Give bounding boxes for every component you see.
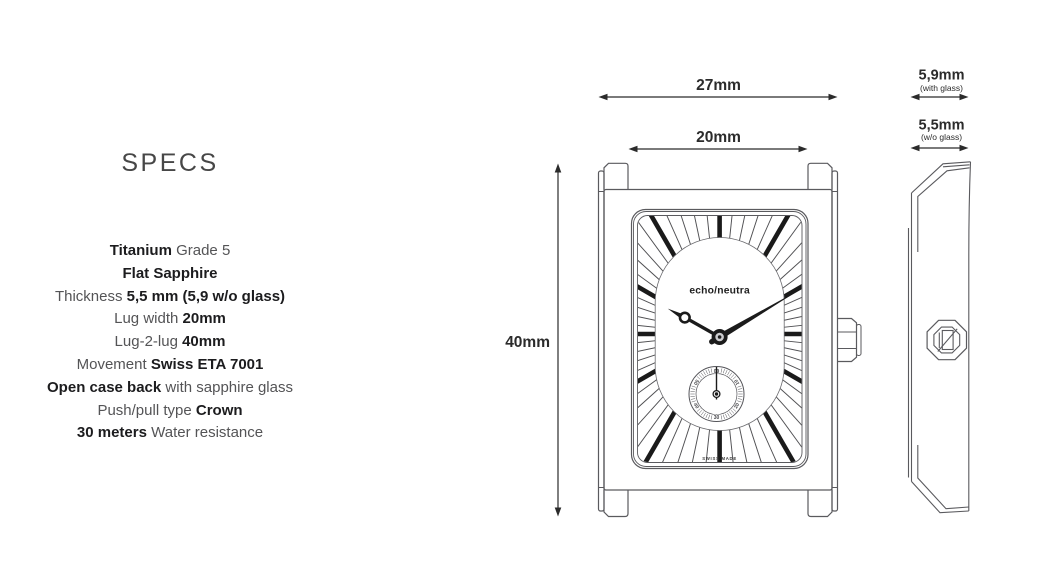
side-top-edge bbox=[912, 162, 971, 193]
lug-bottom-right bbox=[808, 490, 832, 517]
case-flank-left bbox=[599, 171, 605, 511]
dim-lug-to-lug-label: 40mm bbox=[505, 334, 550, 351]
spec-item: 30 meters Water resistance bbox=[28, 422, 312, 445]
dim-thickness-noglass-arrow bbox=[911, 145, 969, 152]
side-bottom-inner-edge bbox=[918, 445, 969, 509]
lug-top-right bbox=[808, 163, 832, 189]
spec-item: Open case back with sapphire glass bbox=[28, 377, 312, 400]
dim-lug-width-label: 20mm bbox=[696, 129, 741, 146]
dim-thickness-glass-label: 5,9mm bbox=[919, 68, 965, 84]
hands-hub bbox=[712, 329, 728, 345]
spec-item: Thickness 5,5 mm (5,9 w/o glass) bbox=[28, 286, 312, 309]
specs-heading: SPECS bbox=[28, 150, 312, 176]
subdial-small-seconds: 601020304050 bbox=[689, 367, 744, 422]
dim-lug-to-lug-arrow bbox=[555, 164, 562, 517]
spec-item: Push/pull type Crown bbox=[28, 400, 312, 423]
side-right-edge bbox=[969, 162, 971, 511]
dim-case-width-label: 27mm bbox=[696, 77, 741, 94]
side-view bbox=[909, 162, 971, 513]
dim-case-width-arrow bbox=[599, 94, 838, 101]
crown-front bbox=[838, 319, 861, 362]
dim-lug-width-arrow bbox=[629, 146, 808, 153]
dial-brand: echo/neutra bbox=[689, 286, 750, 297]
spec-item: Flat Sapphire bbox=[28, 263, 312, 286]
dim-thickness-noglass-note: (w/o glass) bbox=[921, 132, 962, 142]
lug-top-left bbox=[604, 163, 628, 189]
dim-thickness-glass-note: (with glass) bbox=[920, 83, 963, 93]
specs-panel: SPECS Titanium Grade 5Flat SapphireThick… bbox=[28, 150, 312, 445]
case-flank-right bbox=[832, 171, 838, 511]
side-crystal-top bbox=[943, 165, 970, 167]
swiss-made-label: SWISS MADE bbox=[702, 456, 737, 461]
spec-item: Titanium Grade 5 bbox=[28, 240, 312, 263]
svg-text:30: 30 bbox=[714, 415, 720, 421]
spec-item: Movement Swiss ETA 7001 bbox=[28, 354, 312, 377]
spec-item: Lug-2-lug 40mm bbox=[28, 331, 312, 354]
lug-bottom-left bbox=[604, 490, 628, 517]
spec-item: Lug width 20mm bbox=[28, 308, 312, 331]
specs-list: Titanium Grade 5Flat SapphireThickness 5… bbox=[28, 240, 312, 445]
dim-thickness-glass-arrow bbox=[911, 94, 969, 101]
technical-drawing: 27mm 20mm 40mm 5,9mm (with glass) 5,5mm … bbox=[480, 50, 1010, 540]
hour-hand bbox=[668, 309, 720, 337]
front-view: echo/neutra 601020304050 bbox=[570, 163, 870, 516]
crown-side bbox=[927, 320, 966, 359]
spec-sheet: SPECS Titanium Grade 5Flat SapphireThick… bbox=[0, 0, 1042, 576]
